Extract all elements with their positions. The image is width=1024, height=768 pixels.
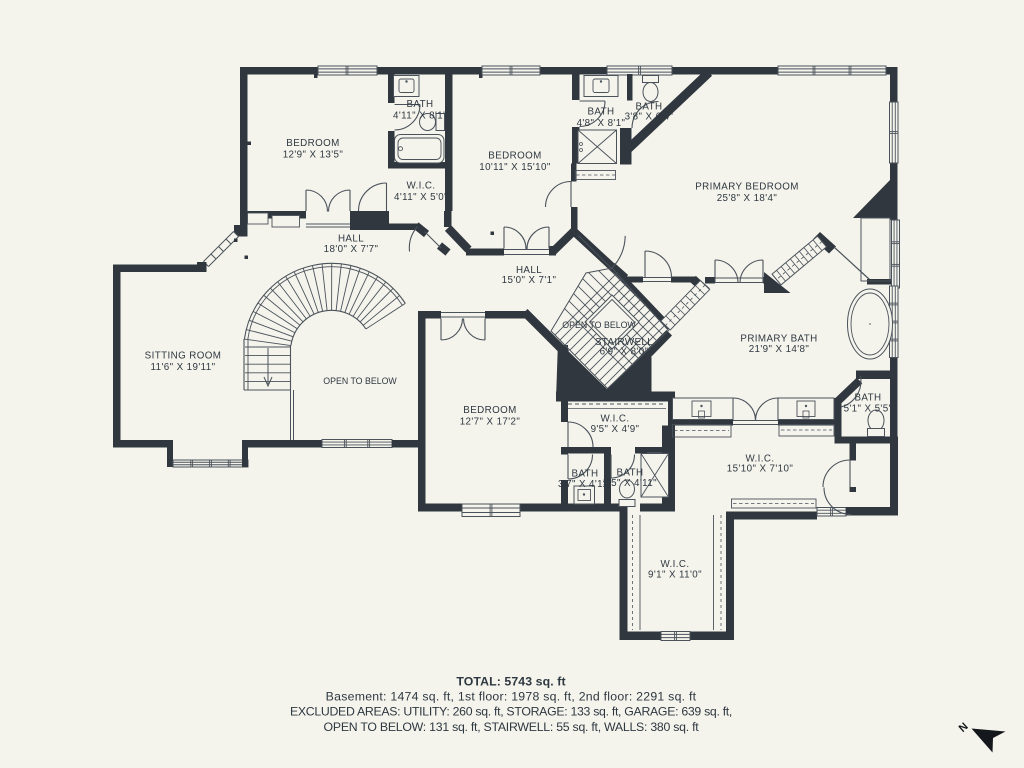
svg-text:12'7" X 17'2": 12'7" X 17'2": [460, 417, 521, 428]
svg-text:BEDROOM: BEDROOM: [463, 405, 516, 416]
svg-text:BATH: BATH: [587, 107, 614, 118]
svg-text:11'6" X 19'11": 11'6" X 19'11": [151, 362, 216, 373]
svg-text:BEDROOM: BEDROOM: [488, 151, 541, 162]
svg-text:BATH: BATH: [571, 469, 598, 480]
svg-text:4'8" X 8'1": 4'8" X 8'1": [577, 118, 626, 129]
svg-text:5'1" X 5'5": 5'1" X 5'5": [844, 404, 893, 415]
svg-text:25'8" X 18'4": 25'8" X 18'4": [717, 193, 778, 204]
svg-text:9'5" X 4'9": 9'5" X 4'9": [591, 424, 640, 435]
svg-text:BATH: BATH: [854, 393, 881, 404]
svg-text:6'9" X 8'0": 6'9" X 8'0": [600, 347, 649, 358]
svg-text:5'5" X 4'11": 5'5" X 4'11": [603, 478, 657, 489]
svg-text:EXCLUDED AREAS: UTILITY: 260 s: EXCLUDED AREAS: UTILITY: 260 sq. ft, STO…: [290, 705, 732, 719]
svg-text:10'11" X 15'10": 10'11" X 15'10": [479, 162, 551, 173]
svg-text:15'0" X 7'1": 15'0" X 7'1": [502, 275, 557, 286]
svg-text:12'9" X 13'5": 12'9" X 13'5": [283, 150, 344, 161]
svg-text:3'8" X 6'4": 3'8" X 6'4": [625, 112, 674, 123]
svg-text:W.I.C.: W.I.C.: [406, 181, 435, 192]
svg-text:Basement: 1474 sq. ft, 1st flo: Basement: 1474 sq. ft, 1st floor: 1978 s…: [326, 690, 697, 704]
svg-text:OPEN TO BELOW: 131 sq. ft, STA: OPEN TO BELOW: 131 sq. ft, STAIRWELL: 55…: [324, 720, 700, 734]
svg-text:15'10" X 7'10": 15'10" X 7'10": [727, 464, 794, 475]
svg-text:W.I.C.: W.I.C.: [660, 559, 689, 570]
svg-text:BEDROOM: BEDROOM: [286, 138, 339, 149]
svg-text:BATH: BATH: [616, 468, 643, 479]
svg-text:TOTAL: 5743 sq. ft: TOTAL: 5743 sq. ft: [456, 675, 565, 689]
svg-text:4'11" X 5'0": 4'11" X 5'0": [394, 192, 448, 203]
svg-text:HALL: HALL: [338, 234, 364, 245]
svg-text:4'11" X 8'1": 4'11" X 8'1": [393, 111, 447, 122]
svg-text:9'1" X 11'0": 9'1" X 11'0": [648, 570, 702, 581]
svg-text:PRIMARY BATH: PRIMARY BATH: [740, 334, 817, 345]
svg-text:OPEN TO BELOW: OPEN TO BELOW: [562, 320, 636, 330]
svg-text:18'0" X 7'7": 18'0" X 7'7": [324, 244, 379, 255]
svg-text:PRIMARY BEDROOM: PRIMARY BEDROOM: [695, 182, 799, 193]
svg-text:W.I.C.: W.I.C.: [600, 414, 629, 425]
svg-text:21'9" X 14'8": 21'9" X 14'8": [749, 344, 810, 355]
svg-text:OPEN TO BELOW: OPEN TO BELOW: [323, 376, 397, 386]
svg-text:SITTING ROOM: SITTING ROOM: [145, 351, 222, 362]
svg-text:BATH: BATH: [406, 99, 433, 110]
